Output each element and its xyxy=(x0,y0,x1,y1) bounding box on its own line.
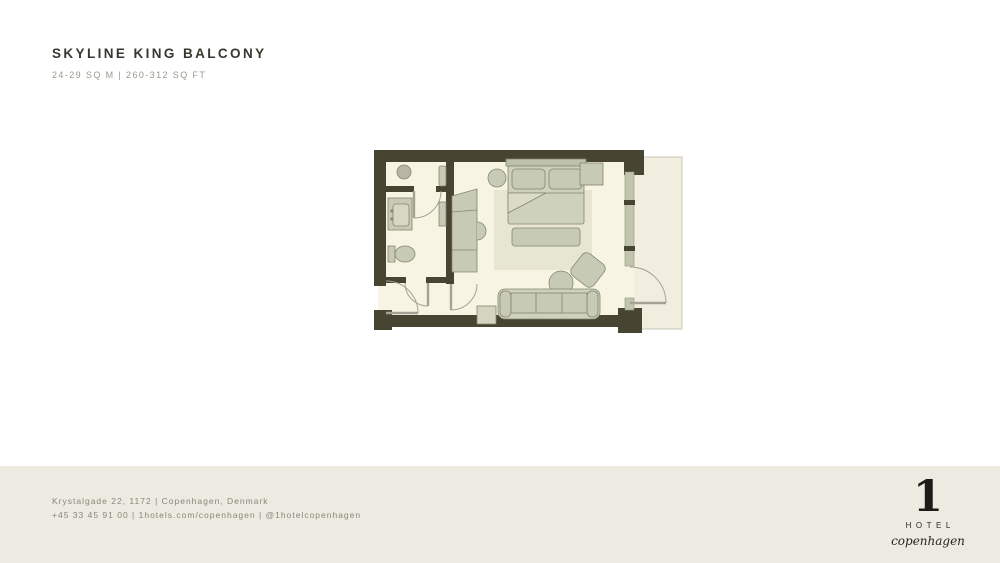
wall-corner-br xyxy=(618,308,642,333)
wall-shower-partition xyxy=(386,186,414,192)
toilet-tank-icon xyxy=(388,246,395,262)
hotel-contact: +45 33 45 91 00 | 1hotels.com/copenhagen… xyxy=(52,508,361,522)
sofa-arm xyxy=(587,291,598,317)
page: SKYLINE KING BALCONY 24-29 SQ M | 260-31… xyxy=(0,0,1000,563)
toilet-icon xyxy=(395,246,415,262)
logo-numeral-1: 1 xyxy=(886,474,970,520)
round-side-table-icon xyxy=(488,169,506,187)
hall-shelf-icon xyxy=(439,202,446,226)
sofa-seat xyxy=(511,293,587,313)
glass-wall-upper xyxy=(625,172,634,266)
footer: Krystalgade 22, 1172 | Copenhagen, Denma… xyxy=(0,466,1000,563)
faucet-icon xyxy=(391,210,393,212)
footer-contact-block: Krystalgade 22, 1172 | Copenhagen, Denma… xyxy=(52,494,361,522)
bed-bench-icon xyxy=(512,228,580,246)
pillow-icon xyxy=(549,169,582,189)
wall-corner-tr xyxy=(624,150,644,175)
sofa-side-table-icon xyxy=(477,306,496,324)
wall-bathroom-jamb xyxy=(426,277,448,283)
wall-left xyxy=(374,150,386,286)
nightstand-icon xyxy=(580,163,603,185)
shower-drain-icon xyxy=(397,165,411,179)
closet-niche-icon xyxy=(439,166,446,186)
sofa-arm xyxy=(500,291,511,317)
glass-mullion xyxy=(624,246,635,251)
headboard-icon xyxy=(506,159,586,166)
glass-mullion xyxy=(624,200,635,205)
hotel-address: Krystalgade 22, 1172 | Copenhagen, Denma… xyxy=(52,494,361,508)
hotel-logo: 1 HOTEL copenhagen xyxy=(886,474,970,548)
wardrobe-icon xyxy=(452,189,477,272)
faucet-icon xyxy=(391,218,393,220)
sink-icon xyxy=(393,204,409,226)
pillow-icon xyxy=(512,169,545,189)
wall-shower-jamb xyxy=(436,186,448,192)
logo-script-copenhagen: copenhagen xyxy=(886,534,970,548)
logo-word-hotel: HOTEL xyxy=(886,521,970,530)
